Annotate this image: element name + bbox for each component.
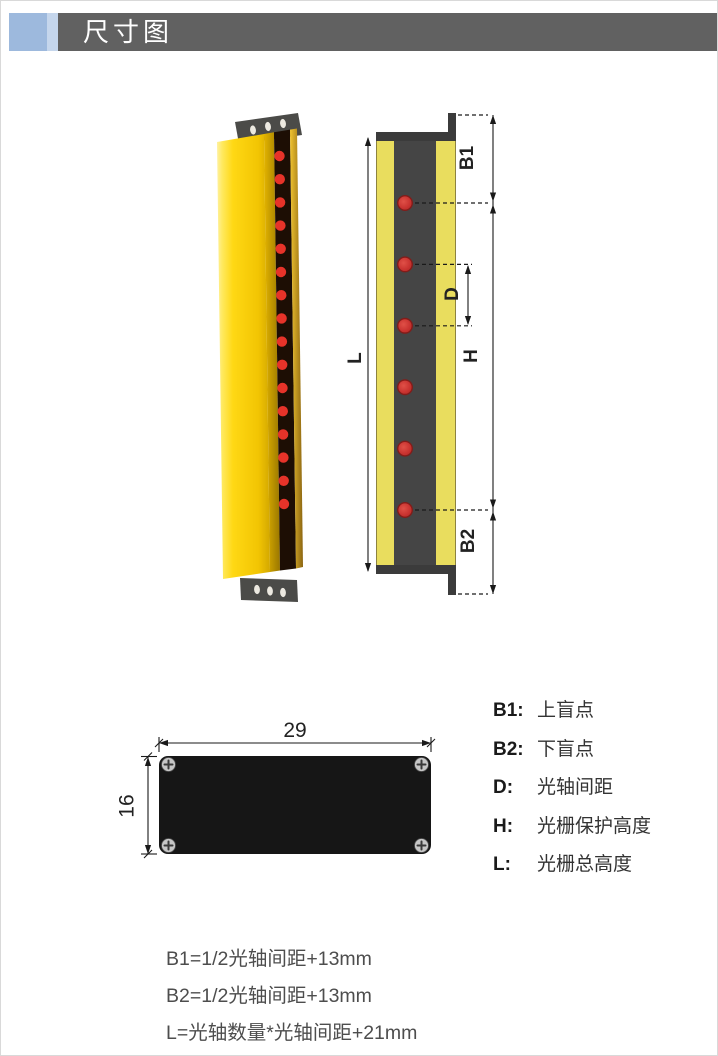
- dimension-drawing: L B1 H B2 D: [1, 1, 717, 1055]
- legend-key: B1:: [493, 700, 537, 722]
- svg-text:L: L: [345, 352, 366, 364]
- formula-b1: B1=1/2光轴间距+13mm: [166, 941, 417, 978]
- legend-desc: 光栅总高度: [537, 849, 632, 876]
- bottom-end-cap: [376, 565, 456, 595]
- formula-b2: B2=1/2光轴间距+13mm: [166, 978, 417, 1015]
- dimension-height-16: 16: [116, 753, 157, 859]
- svg-text:B2: B2: [458, 529, 479, 553]
- legend-key: B2:: [493, 739, 537, 761]
- section-body: [159, 756, 431, 854]
- legend-item-b2: B2: 下盲点: [493, 734, 708, 773]
- legend-desc: 光栅保护高度: [537, 811, 651, 838]
- dimension-B1-H-B2: B1 H B2: [457, 115, 496, 594]
- svg-text:B1: B1: [457, 145, 478, 170]
- legend-key: D:: [493, 777, 537, 799]
- legend-item-b1: B1: 上盲点: [493, 695, 708, 734]
- legend-key: H:: [493, 816, 537, 838]
- dimension-sheet-page: 尺寸图: [0, 0, 718, 1056]
- bottom-mounting-bracket: [240, 578, 298, 602]
- svg-text:16: 16: [116, 794, 139, 817]
- formula-l: L=光轴数量*光轴间距+21mm: [166, 1015, 417, 1052]
- legend: B1: 上盲点 B2: 下盲点 D: 光轴间距 H: 光栅保护高度 L: 光栅总…: [493, 695, 708, 888]
- legend-desc: 光轴间距: [537, 772, 613, 799]
- product-2d-dimension-view: L B1 H B2 D: [345, 113, 496, 595]
- legend-item-d: D: 光轴间距: [493, 772, 708, 811]
- legend-key: L:: [493, 854, 537, 876]
- svg-text:H: H: [461, 349, 482, 363]
- legend-item-h: H: 光栅保护高度: [493, 811, 708, 850]
- top-end-cap: [376, 113, 456, 141]
- housing-front-face: [217, 134, 270, 579]
- dimension-width-29: 29: [155, 719, 435, 752]
- svg-text:D: D: [442, 287, 463, 301]
- legend-desc: 上盲点: [537, 695, 594, 722]
- column-left-yellow: [376, 137, 394, 574]
- cross-section-view: 29 16: [116, 719, 435, 858]
- legend-item-l: L: 光栅总高度: [493, 849, 708, 888]
- dimension-L: L: [345, 137, 371, 572]
- svg-text:29: 29: [283, 719, 306, 742]
- formula-notes: B1=1/2光轴间距+13mm B2=1/2光轴间距+13mm L=光轴数量*光…: [166, 941, 417, 1052]
- product-3d-view: [217, 113, 303, 602]
- legend-desc: 下盲点: [537, 734, 594, 761]
